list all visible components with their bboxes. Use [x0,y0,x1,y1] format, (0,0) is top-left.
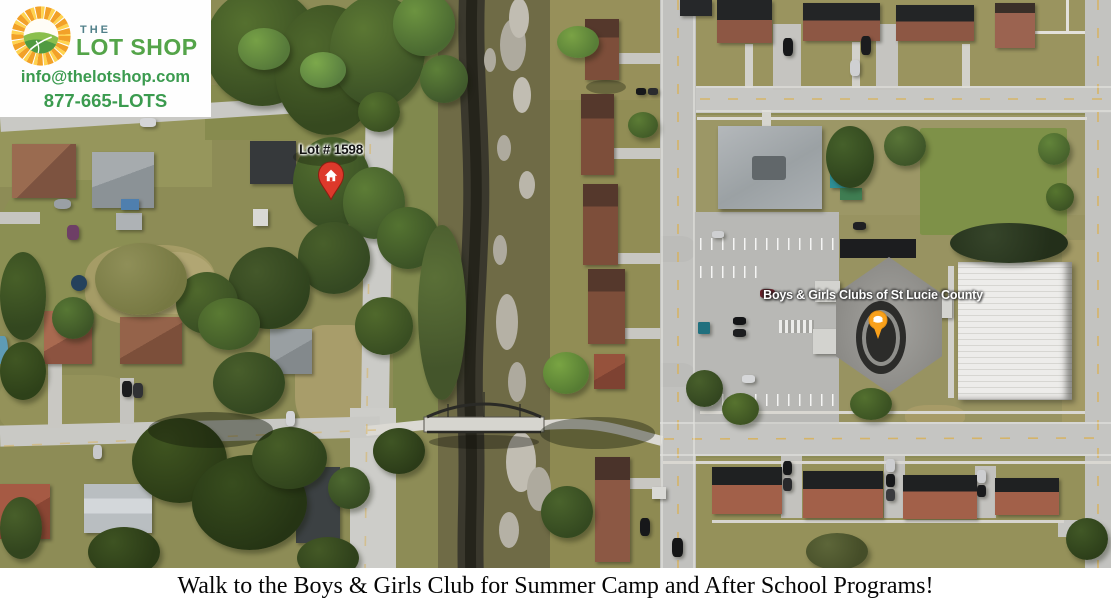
tree-canopy [328,467,370,509]
caption-bar: Walk to the Boys & Girls Club for Summer… [0,568,1111,605]
crosswalk [779,320,814,333]
tree-shadow [586,80,626,94]
apartment-roof [712,467,782,514]
tree-canopy [0,342,46,400]
bridge-shadow [429,435,539,449]
car [853,222,866,230]
yard-object [54,199,71,209]
tree-canopy [0,252,46,340]
car [712,231,724,238]
tree-canopy [557,26,599,58]
yard-object [253,209,268,226]
car [648,88,658,95]
house-roof [120,317,182,364]
tree-canopy [541,486,593,538]
car [783,478,792,491]
tree-canopy [238,28,290,70]
house-roof [588,269,625,344]
tree-canopy [850,388,892,420]
tree-canopy [1066,518,1108,560]
contact-email: info@thelotshop.com [0,68,211,87]
tree-canopy [950,223,1068,263]
house-roof [12,144,76,198]
tree-canopy [686,370,723,407]
club-marker [866,310,890,345]
car [977,470,986,483]
caption-text: Walk to the Boys & Girls Club for Summer… [0,568,1111,604]
car [783,461,792,475]
yard-object [652,487,666,499]
contact-phone: 877-665-LOTS [0,90,211,112]
canal-water-center [470,0,477,568]
tree-canopy [373,428,425,474]
yard-object [71,275,87,291]
car [742,375,755,383]
car [733,329,746,337]
community-building [718,126,822,209]
club-label: Boys & Girls Clubs of St Lucie County [673,288,1073,302]
tree-canopy [722,393,759,425]
tree-canopy [355,297,413,355]
yard-object [840,188,862,200]
canal-rocks [484,0,551,548]
apartment-roof [717,0,772,43]
tree-canopy [213,352,285,414]
car [93,445,102,459]
house-roof [84,484,152,533]
car [286,411,295,426]
map-pin-icon [317,161,345,201]
yard-object [116,213,142,230]
apartment-roof [680,0,712,16]
bridge-deck [424,417,544,432]
tree-canopy [1046,183,1074,211]
gym-building [958,262,1072,400]
house-roof [581,94,614,175]
tree-canopy [806,533,868,568]
apartment-roof [803,471,883,518]
house-roof [594,354,625,389]
tree-shadow [148,412,273,448]
tree-canopy [0,497,42,559]
car [140,118,156,127]
promo-image: Lot # 1598 Boys & Girls Clubs of St Luci… [0,0,1111,605]
club-wing [813,329,840,354]
parking-stall-lines [700,238,834,250]
car [640,518,650,536]
tree-shadow [540,417,655,449]
tree-canopy [418,225,466,400]
tree-canopy [628,112,658,138]
tree-canopy [198,298,260,350]
car [783,38,793,56]
apartment-roof [995,478,1059,515]
tree-canopy [95,243,187,315]
car [122,381,132,397]
car [886,489,895,501]
apartment-roof [995,3,1035,48]
apartment-roof [903,475,977,519]
tree-canopy [300,52,346,88]
place-icon [866,310,890,340]
yard-object [67,225,79,240]
tree-canopy [88,527,160,568]
car [636,88,646,95]
sun-hills-logo-icon [9,4,73,68]
tree-canopy [420,55,468,103]
car [133,383,143,398]
lot-1598-label: Lot # 1598 [251,142,411,157]
tree-canopy [826,126,874,188]
parking-stall-lines [700,266,762,278]
car [672,538,683,557]
lot-1598-marker [317,161,345,206]
house-roof [583,184,618,265]
car [977,485,986,497]
house-roof [595,457,630,562]
tree-canopy [1038,133,1070,165]
car [850,60,860,76]
tree-canopy [52,297,94,339]
car [861,36,871,55]
apartment-roof [896,5,974,41]
tree-canopy [884,126,926,166]
tree-canopy [358,92,400,132]
lot-shop-logo-card: THE LOT SHOP info@thelotshop.com 877-665… [0,0,211,117]
brand-name: LOT SHOP [76,34,198,61]
car [886,474,895,487]
car [733,317,746,325]
club-entrance-canopy [840,239,916,258]
car [886,459,895,472]
tree-canopy [543,352,589,394]
yard-object [698,322,710,334]
yard-object [121,199,139,210]
